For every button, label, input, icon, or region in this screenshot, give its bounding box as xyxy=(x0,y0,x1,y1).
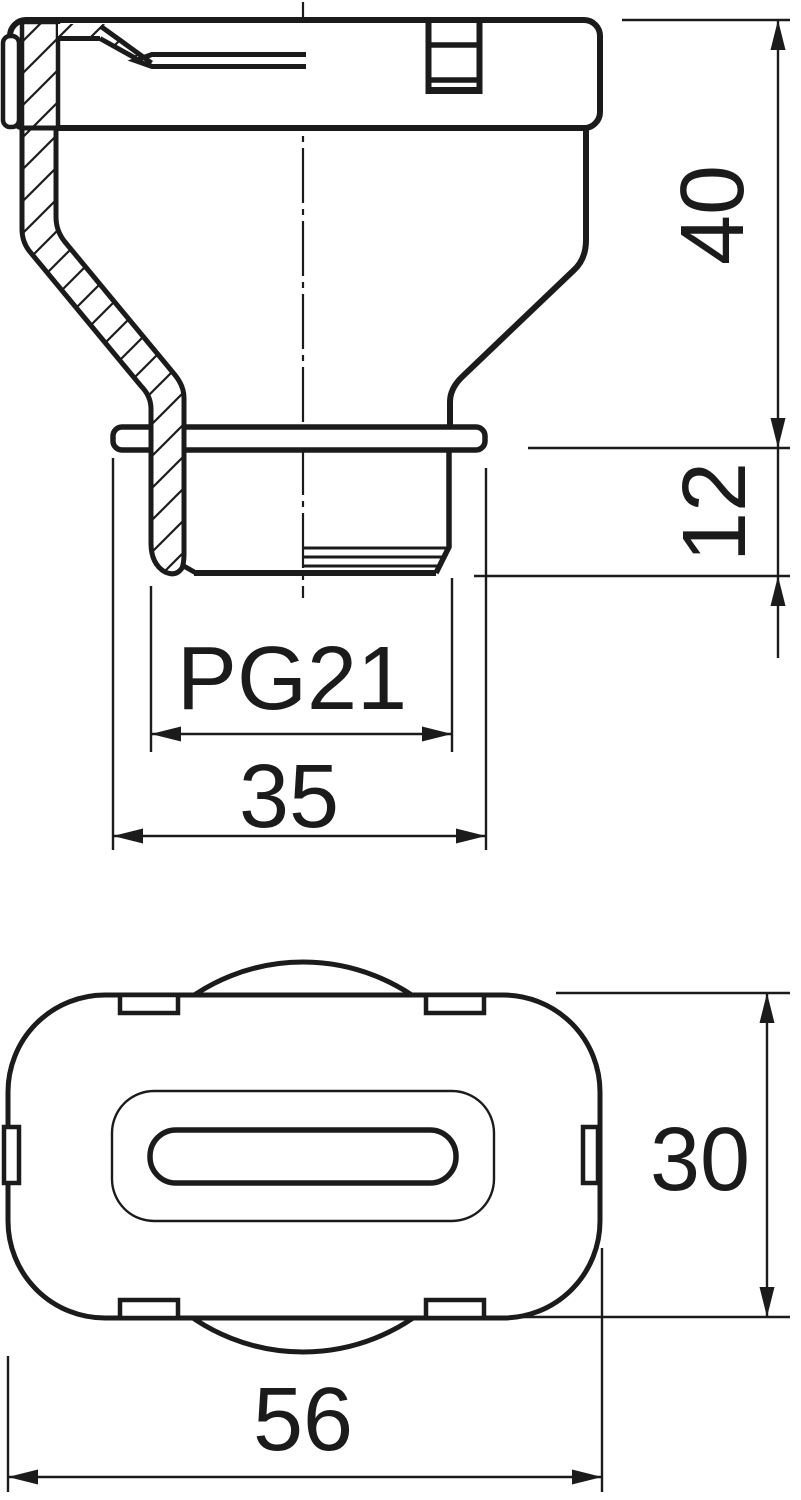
thread-bottom-left-chamfer xyxy=(182,565,196,573)
bottom-view: 30 56 xyxy=(4,962,790,1492)
drawing-page: 40 12 PG21 35 xyxy=(0,0,801,1500)
tab-bottom-right xyxy=(426,1300,484,1318)
slot-outline xyxy=(150,1130,456,1183)
dimension-arrow xyxy=(760,993,775,1023)
dimension-arrow xyxy=(771,20,786,50)
tab-bottom-left xyxy=(120,1300,178,1318)
tab-right xyxy=(583,1127,598,1183)
dimension-arrow xyxy=(771,418,786,448)
dimension-arrow xyxy=(422,727,452,742)
dimension-label-56: 56 xyxy=(253,1370,353,1470)
thread-right-wall xyxy=(436,450,449,573)
dimension-pg21: PG21 xyxy=(151,578,452,752)
dimension-label-12: 12 xyxy=(665,462,765,562)
technical-drawing: 40 12 PG21 35 xyxy=(0,0,801,1500)
funnel-right-wall xyxy=(450,130,586,427)
tab-left xyxy=(4,1127,19,1183)
dimension-arrow xyxy=(456,829,486,844)
dimension-label-30: 30 xyxy=(650,1110,750,1210)
dimension-arrow xyxy=(760,1287,775,1317)
section-view: 40 12 PG21 35 xyxy=(3,2,790,850)
tab-top-right xyxy=(426,995,484,1013)
funnel-wall-section xyxy=(22,128,184,574)
dimension-label-pg21: PG21 xyxy=(177,629,407,729)
dimension-arrow xyxy=(8,1470,38,1485)
thread-crest-lines xyxy=(303,548,446,566)
dimension-arrow xyxy=(572,1470,602,1485)
threaded-neck xyxy=(182,450,449,573)
dimension-label-40: 40 xyxy=(663,165,763,265)
dimension-arrow xyxy=(113,829,143,844)
dimension-arrow xyxy=(771,576,786,606)
dimension-label-35: 35 xyxy=(239,747,339,847)
cap-wall-section xyxy=(22,22,58,128)
skirt-lip xyxy=(3,36,19,127)
tab-top-left xyxy=(120,995,178,1013)
dimension-12: 12 xyxy=(474,448,790,658)
